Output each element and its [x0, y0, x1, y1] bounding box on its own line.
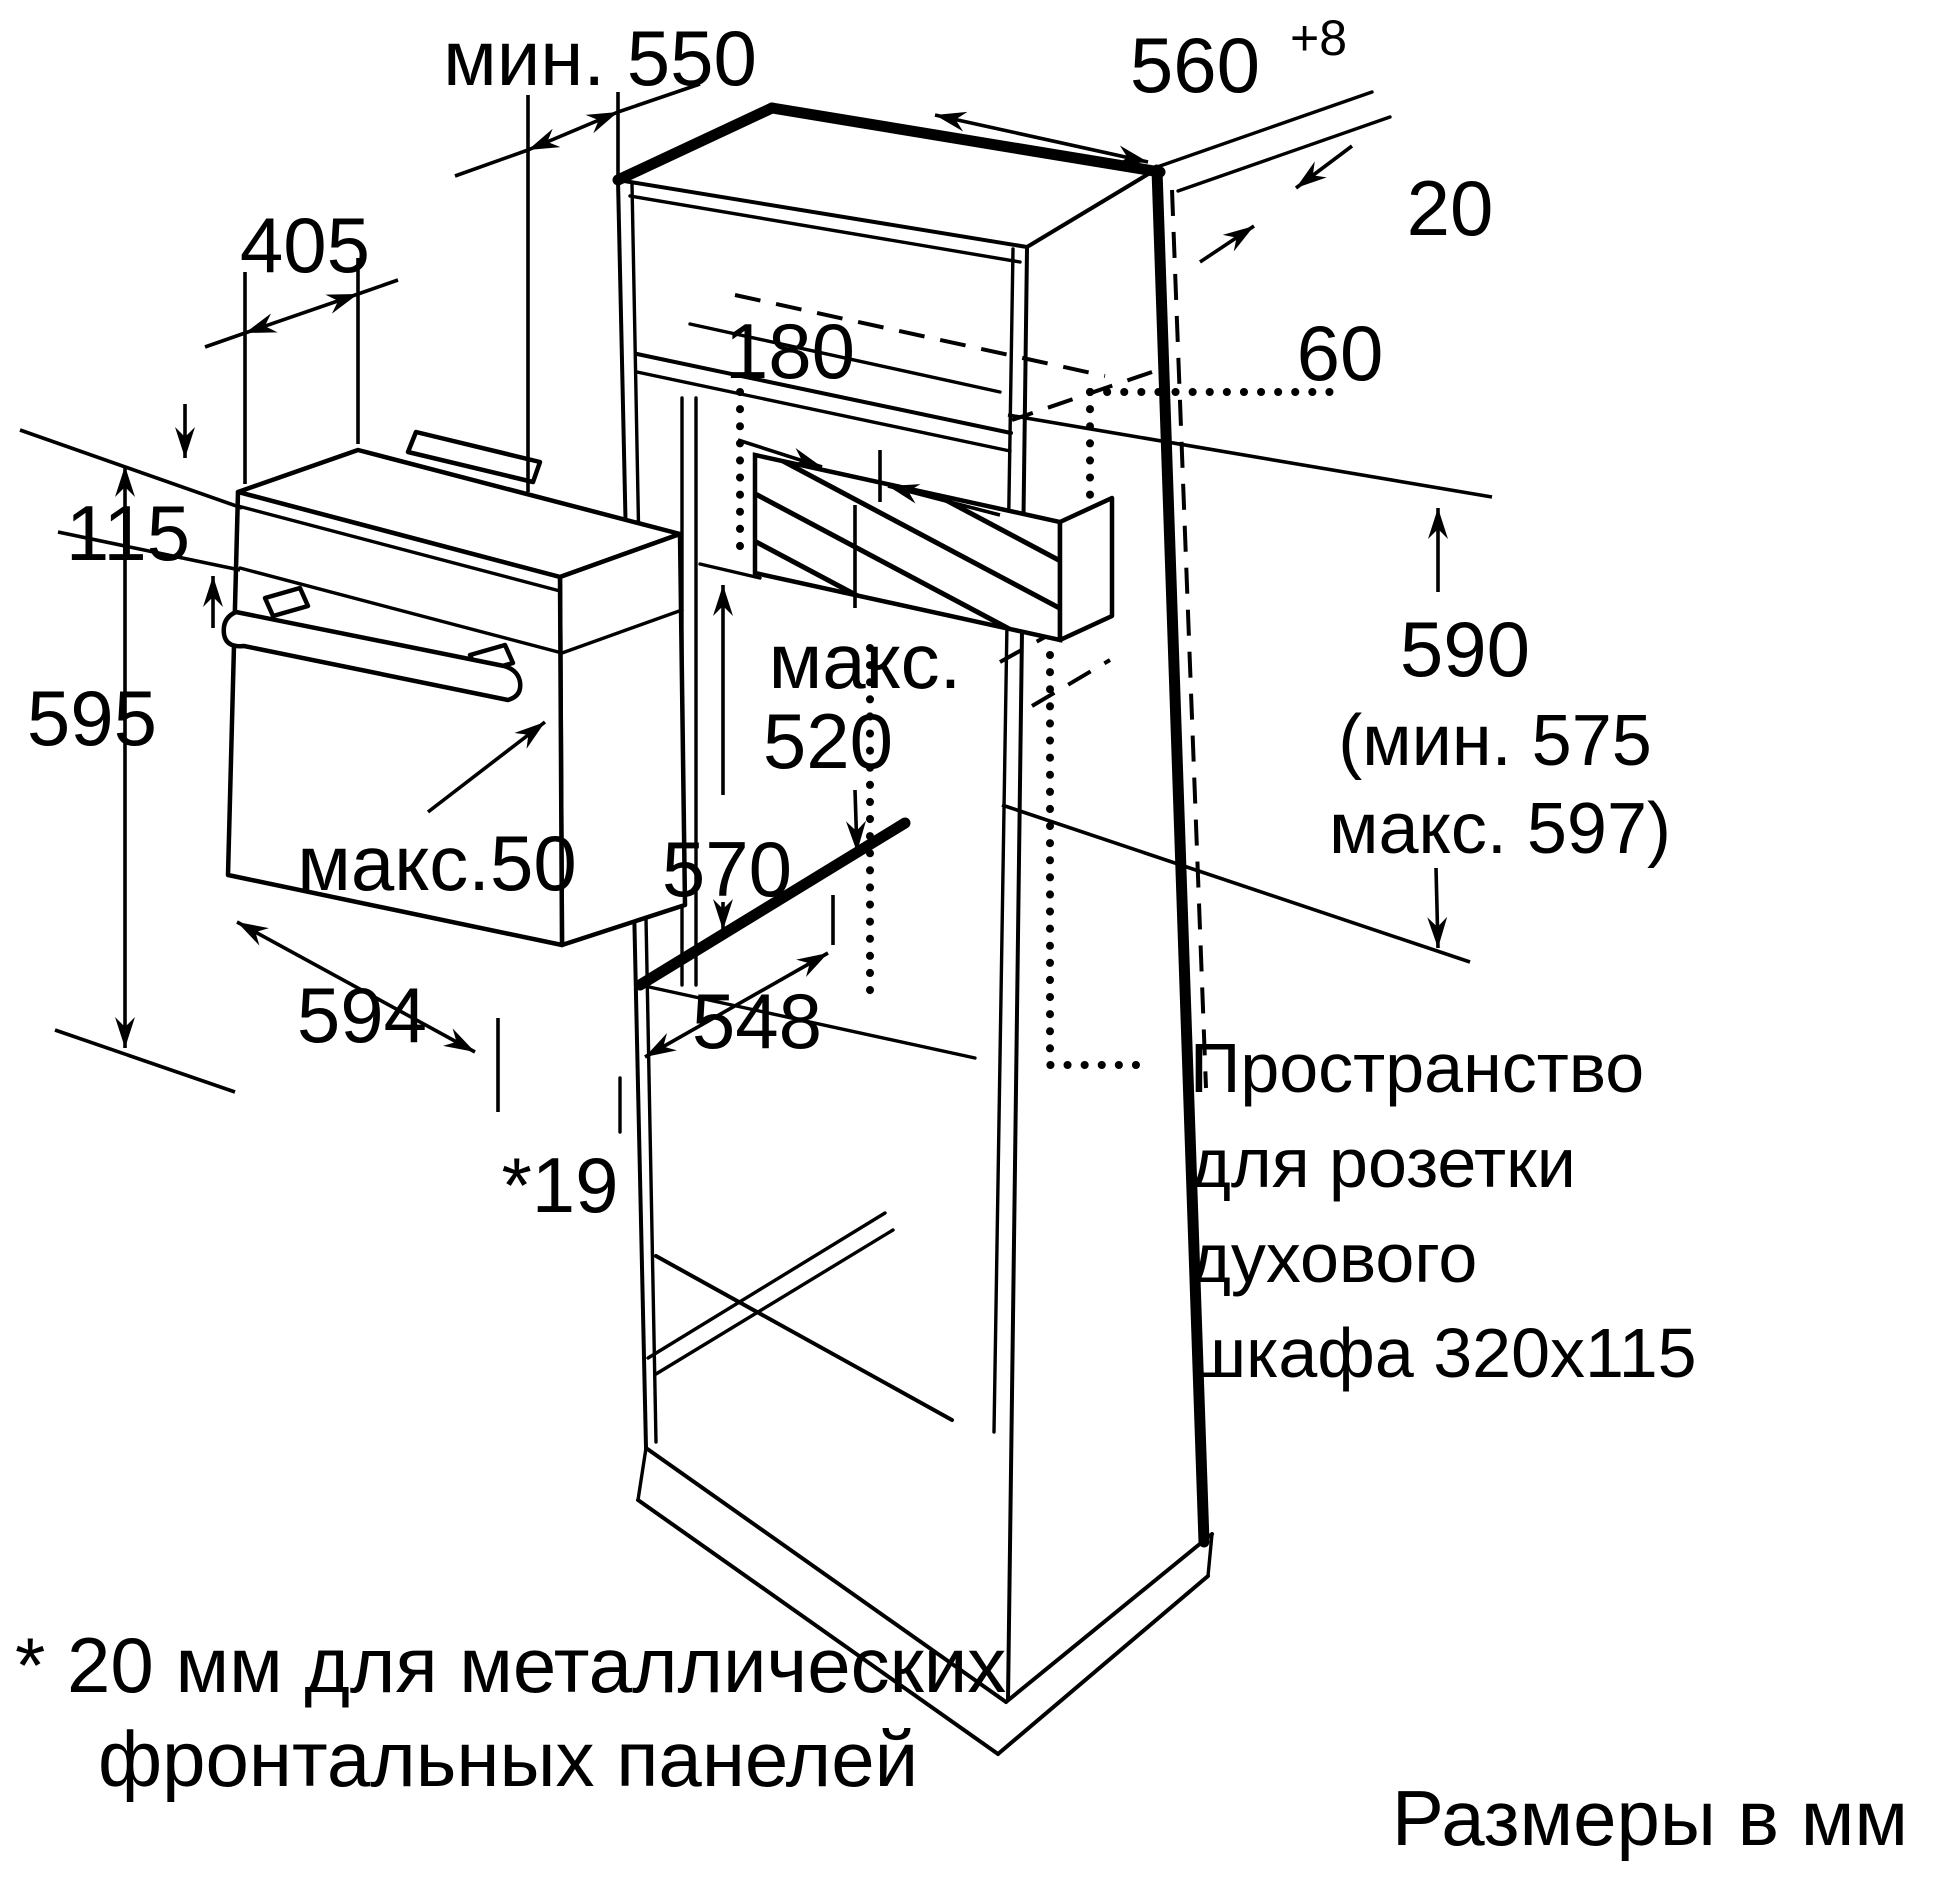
socket-hatched-face [755, 455, 1060, 640]
dashed-interior-2 [1012, 372, 1152, 420]
wall-line-2 [1178, 117, 1390, 191]
cabinet-top-back-edge [772, 108, 1160, 172]
footnote: * 20 мм для металлических фронтальных па… [15, 1621, 1006, 1803]
dim-20 [1200, 146, 1352, 262]
label-570: 570 [662, 825, 792, 913]
dashed-interior-4 [1032, 660, 1110, 706]
ext-line-bottom [55, 1030, 235, 1092]
bottom-floor-front-edge [656, 1256, 952, 1420]
socket-note-line1: Пространство [1190, 1029, 1644, 1107]
dim-min550 [455, 84, 700, 492]
label-405: 405 [240, 201, 370, 289]
label-595: 595 [27, 674, 157, 762]
footnote-line2: фронтальных панелей [98, 1715, 918, 1803]
socket-note-line4: шкафа 320x115 [1190, 1314, 1697, 1392]
label-590-min: (мин. 575 [1338, 701, 1652, 781]
plinth-left-edge [638, 1448, 646, 1500]
ext-line-top [1008, 415, 1492, 497]
label-180: 180 [725, 307, 855, 395]
cabinet-front-right-edge-inner [994, 249, 1013, 1432]
label-min550: мин. 550 [443, 14, 757, 102]
label-520: 520 [763, 697, 893, 785]
dim-405 [205, 258, 398, 484]
diagram-stage: мин. 550 560 +8 20 405 115 595 180 60 ма… [0, 0, 1948, 1884]
label-590-max: макс. 597) [1329, 789, 1671, 869]
arrow [245, 294, 358, 333]
label-maks50: макс.50 [297, 819, 576, 907]
socket-note: Пространство для розетки духового шкафа … [1190, 1029, 1697, 1392]
label-60: 60 [1297, 309, 1384, 397]
leader-socket-note [1050, 655, 1152, 1065]
label-20: 20 [1407, 164, 1494, 252]
label-115: 115 [66, 489, 190, 577]
installation-diagram: мин. 550 560 +8 20 405 115 595 180 60 ма… [0, 0, 1948, 1884]
label-maks: макс. [769, 617, 962, 705]
cabinet-top-left-depth-edge [618, 108, 772, 180]
arrow-down [855, 790, 857, 852]
label-560-tolerance: +8 [1290, 10, 1347, 66]
arrow [1296, 146, 1352, 188]
socket-note-line2: для розетки [1190, 1124, 1576, 1202]
socket-note-line3: духового [1190, 1219, 1477, 1297]
plinth-bottom-depth-edge [998, 1576, 1208, 1754]
arrow [1200, 226, 1254, 262]
cabinet-top-front-edge [618, 180, 1027, 247]
box-bottom-depth-edge [1006, 1534, 1212, 1702]
label-590: 590 [1400, 605, 1530, 693]
arrow [528, 112, 618, 150]
cabinet-top-front-inner [630, 196, 1020, 262]
arrow-down [1436, 868, 1438, 948]
units-note: Размеры в мм [1392, 1774, 1908, 1862]
label-560: 560 [1130, 21, 1260, 109]
socket-bottom-ref [700, 564, 760, 578]
socket-side-face [1060, 498, 1112, 640]
label-19: *19 [501, 1141, 618, 1229]
footnote-line1: * 20 мм для металлических [15, 1621, 1006, 1709]
label-594: 594 [297, 971, 427, 1059]
bottom-floor-depth-2 [656, 1230, 893, 1374]
label-548: 548 [692, 977, 822, 1065]
socket-space [755, 455, 1112, 640]
bottom-floor-depth-1 [648, 1213, 885, 1358]
cabinet-top-right-depth-edge [1027, 170, 1155, 247]
